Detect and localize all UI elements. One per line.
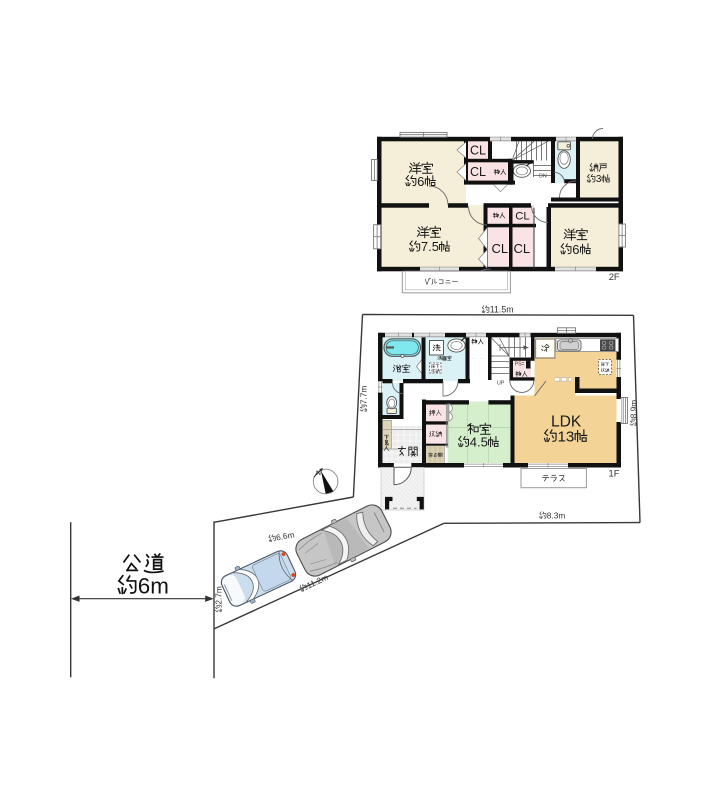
svg-text:PS=: PS=: [515, 361, 525, 367]
svg-text:CL: CL: [470, 144, 486, 158]
svg-text:7.5: 7.5: [421, 239, 439, 254]
svg-text:CL: CL: [492, 241, 509, 256]
svg-text:2.7m: 2.7m: [214, 586, 224, 605]
svg-text:8.3m: 8.3m: [547, 510, 566, 520]
svg-text:CL: CL: [470, 165, 486, 179]
svg-text:CL: CL: [515, 211, 530, 223]
svg-text:13: 13: [558, 429, 575, 446]
svg-text:1F: 1F: [609, 467, 620, 478]
svg-text:6: 6: [417, 174, 424, 189]
svg-text:DN: DN: [539, 174, 547, 180]
svg-text:6: 6: [572, 242, 579, 257]
svg-text:6m: 6m: [138, 574, 169, 599]
svg-text:CL: CL: [514, 241, 531, 256]
svg-text:11.5m: 11.5m: [490, 305, 514, 315]
svg-text:N: N: [316, 470, 321, 477]
svg-text:UP: UP: [497, 380, 505, 386]
svg-text:8.9m: 8.9m: [629, 400, 639, 419]
svg-text:4.5: 4.5: [470, 435, 488, 450]
svg-text:7.7m: 7.7m: [359, 386, 369, 405]
svg-text:2F: 2F: [609, 271, 620, 282]
svg-text:3: 3: [596, 174, 602, 185]
